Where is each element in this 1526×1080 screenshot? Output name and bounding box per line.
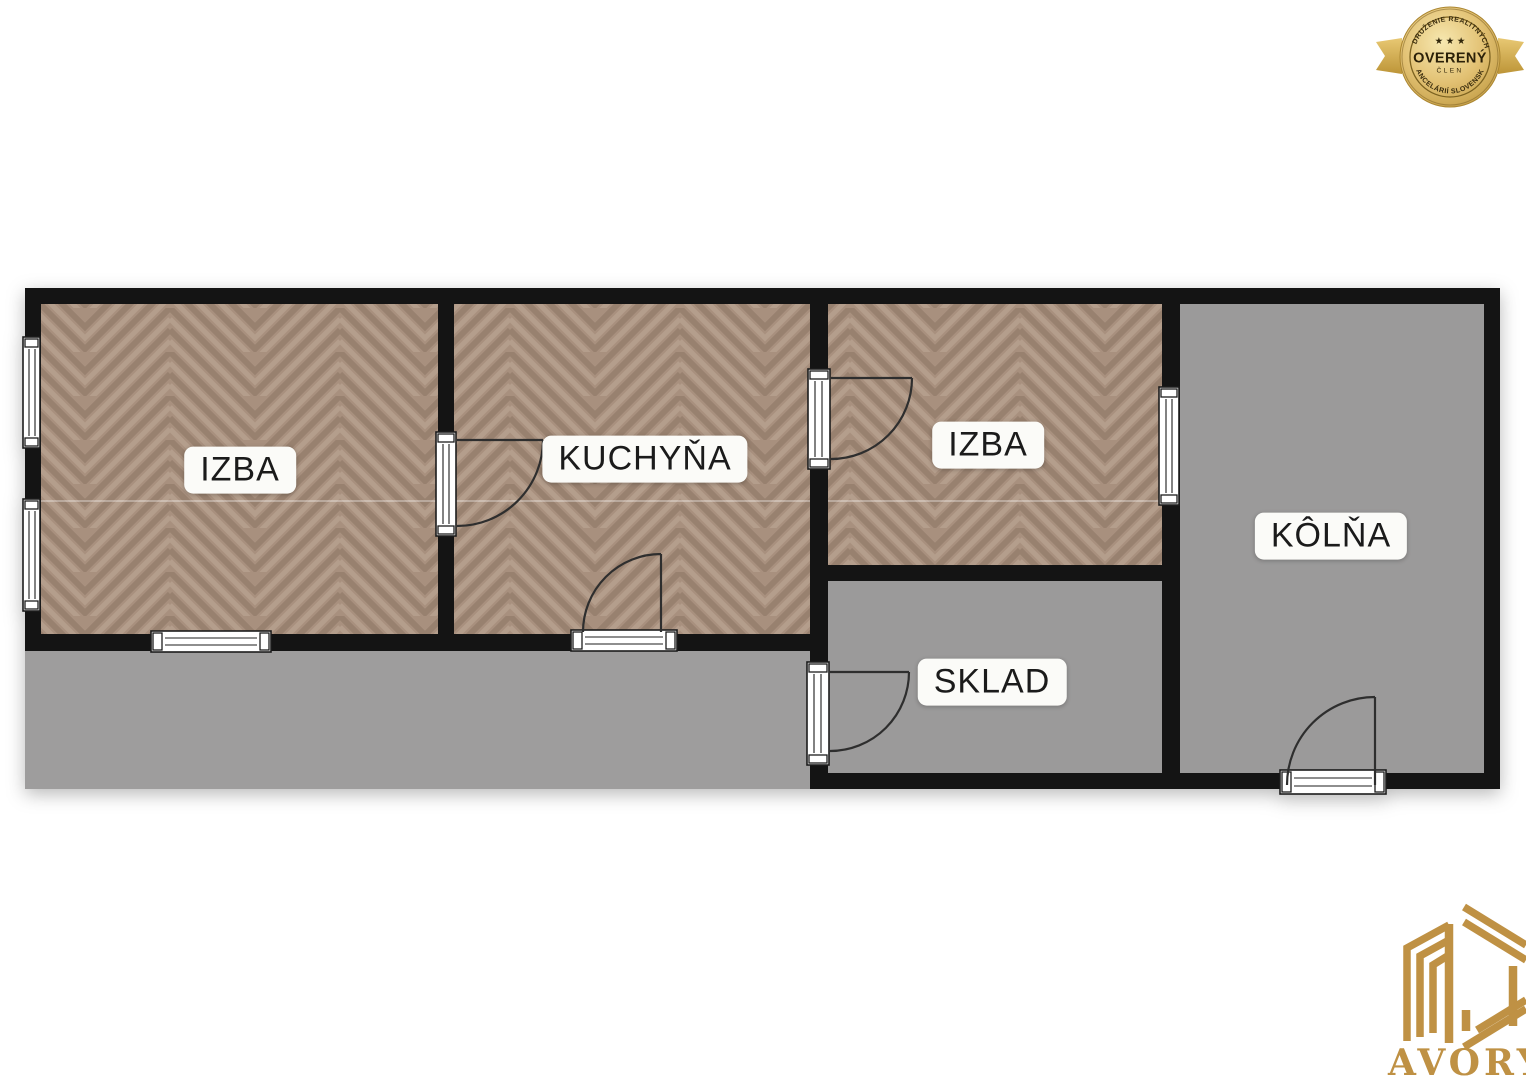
floor-outdoor-terrace	[25, 651, 810, 789]
floorplan-canvas: IZBA KUCHYŇA IZBA KÔLŇA SKLAD ZDRUŽENIE …	[0, 0, 1526, 1080]
window-izba2-right	[1159, 387, 1179, 505]
window-left-upper	[23, 337, 40, 448]
window-izba1-bottom	[151, 631, 271, 652]
logo-right-door	[1464, 907, 1526, 1047]
window-left-lower	[23, 499, 40, 611]
wall-izba2-sklad	[810, 565, 1180, 581]
wall-bottom-right	[810, 773, 1500, 789]
room-label-kuchyna: KUCHYŇA	[542, 436, 747, 483]
badge-member-label: ČLEN	[1437, 66, 1464, 75]
verified-member-badge: ZDRUŽENIE REALITNÝCH ★ ★ ★ OVERENÝ ČLEN …	[1376, 0, 1526, 118]
badge-ribbon-right	[1498, 38, 1524, 74]
room-label-kolna: KÔLŇA	[1255, 513, 1407, 560]
badge-stars: ★ ★ ★	[1435, 36, 1466, 47]
room-label-izba-2: IZBA	[932, 422, 1044, 469]
wall-bottom-left	[25, 634, 828, 651]
wall-izba2-kolna	[1162, 288, 1180, 789]
room-label-izba-1: IZBA	[184, 447, 296, 494]
badge-title: OVERENÝ	[1413, 49, 1487, 67]
brand-wordmark: AVORY	[1388, 1042, 1526, 1080]
logo-left-door	[1407, 924, 1449, 1043]
room-label-sklad: SKLAD	[918, 659, 1067, 706]
wall-top	[25, 288, 1500, 304]
wall-right	[1484, 288, 1500, 789]
badge-ribbon-left	[1376, 38, 1402, 74]
